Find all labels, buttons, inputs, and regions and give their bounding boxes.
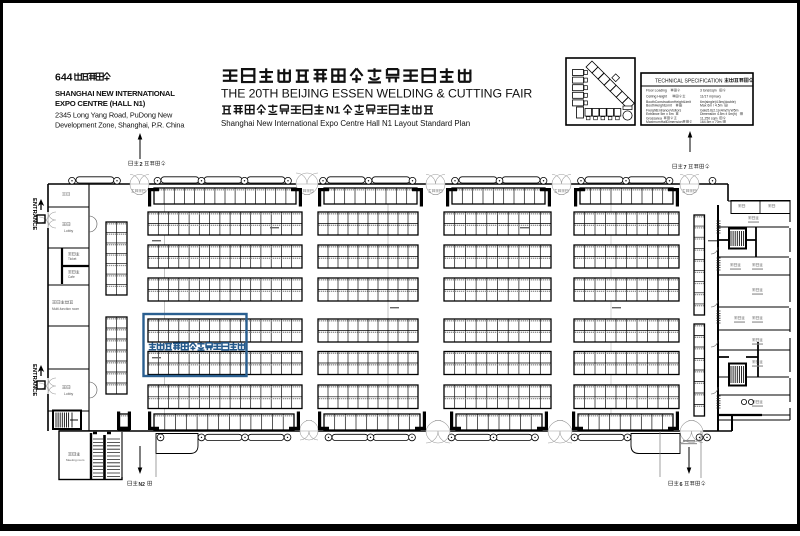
svg-text:Max 6m / 4.5m: Max 6m / 4.5m xyxy=(700,104,723,108)
svg-text:Meeting room: Meeting room xyxy=(66,458,85,462)
svg-text:2: 2 xyxy=(140,162,143,168)
svg-text:ENTRANCE: ENTRANCE xyxy=(31,364,37,396)
svg-text:Ceiling Height: Ceiling Height xyxy=(646,95,667,99)
svg-text:EXPO CENTRE (HALL N1): EXPO CENTRE (HALL N1) xyxy=(55,99,146,108)
svg-text:Ticket: Ticket xyxy=(68,257,76,261)
svg-text:2345 Long Yang Road, PuDong Ne: 2345 Long Yang Road, PuDong New xyxy=(55,111,173,120)
svg-text:TECHNICAL SPECIFICATION: TECHNICAL SPECIFICATION xyxy=(655,79,723,85)
svg-text:BoothHeightLimit: BoothHeightLimit xyxy=(646,104,672,108)
svg-text:644: 644 xyxy=(55,72,73,84)
svg-text:7: 7 xyxy=(684,165,687,171)
svg-text:N1: N1 xyxy=(326,105,340,117)
svg-text:SHANGHAI NEW INTERNATIONAL: SHANGHAI NEW INTERNATIONAL xyxy=(55,89,175,98)
svg-text:164.5m x 70m: 164.5m x 70m xyxy=(700,120,722,124)
svg-text:6: 6 xyxy=(680,482,683,488)
svg-text:N2: N2 xyxy=(139,482,146,488)
svg-text:Development Zone, Shanghai, P.: Development Zone, Shanghai, P.R. China xyxy=(55,121,185,130)
svg-text:Floor Loading: Floor Loading xyxy=(646,89,667,93)
svg-text:THE 20TH BEIJING ESSEN WELDING: THE 20TH BEIJING ESSEN WELDING & CUTTING… xyxy=(221,87,532,101)
svg-text:ENTRANCE: ENTRANCE xyxy=(31,198,37,230)
svg-text:MaximumHallDimension: MaximumHallDimension xyxy=(646,120,683,124)
svg-text:Shanghai New International Exp: Shanghai New International Expo Centre H… xyxy=(221,119,470,128)
svg-text:Cafe: Cafe xyxy=(68,275,75,279)
svg-text:Multi-function room: Multi-function room xyxy=(52,307,79,311)
svg-text:Lobby: Lobby xyxy=(64,392,74,396)
svg-text:3 tons/sqm: 3 tons/sqm xyxy=(700,89,717,93)
svg-text:Lobby: Lobby xyxy=(64,229,74,233)
svg-text:11/17 m(max): 11/17 m(max) xyxy=(700,95,721,99)
